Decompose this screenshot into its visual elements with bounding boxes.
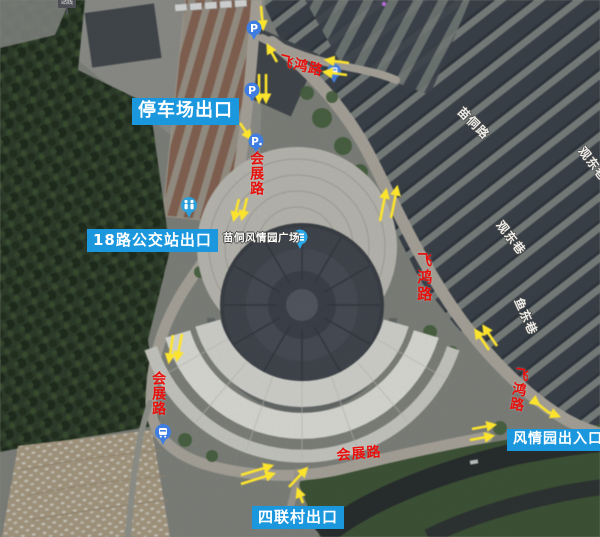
bus-station-icon[interactable]: [181, 197, 197, 218]
map-pins: P P P: [0, 0, 600, 537]
road-label-huizhan-west: 会展路: [248, 151, 263, 196]
signpost-label: 站线: [58, 0, 76, 8]
svg-text:P: P: [248, 84, 256, 97]
signpost-stem: [66, 8, 68, 15]
callout-bus-18-station-exit: 18路公交站出口: [87, 229, 218, 252]
parking-icon[interactable]: P: [245, 83, 260, 103]
svg-text:P: P: [250, 22, 258, 35]
road-label-huizhan-southwest: 会展路: [150, 371, 165, 416]
plaza-name-label: 苗侗风情园广场: [223, 230, 300, 245]
map-signpost: 站线: [58, 0, 76, 15]
parking-icon[interactable]: P: [247, 21, 262, 41]
bus-stop-icon[interactable]: [155, 424, 171, 445]
callout-silian-village-exit: 四联村出口: [252, 506, 344, 529]
svg-text:P: P: [251, 136, 259, 148]
callout-parking-lot-exit: 停车场出口: [132, 98, 239, 125]
road-label-feihong-east: 飞鸿路: [416, 252, 432, 303]
satellite-map[interactable]: P P P: [0, 0, 600, 537]
callout-park-entrance-exit: 风情园出入口: [507, 429, 600, 451]
